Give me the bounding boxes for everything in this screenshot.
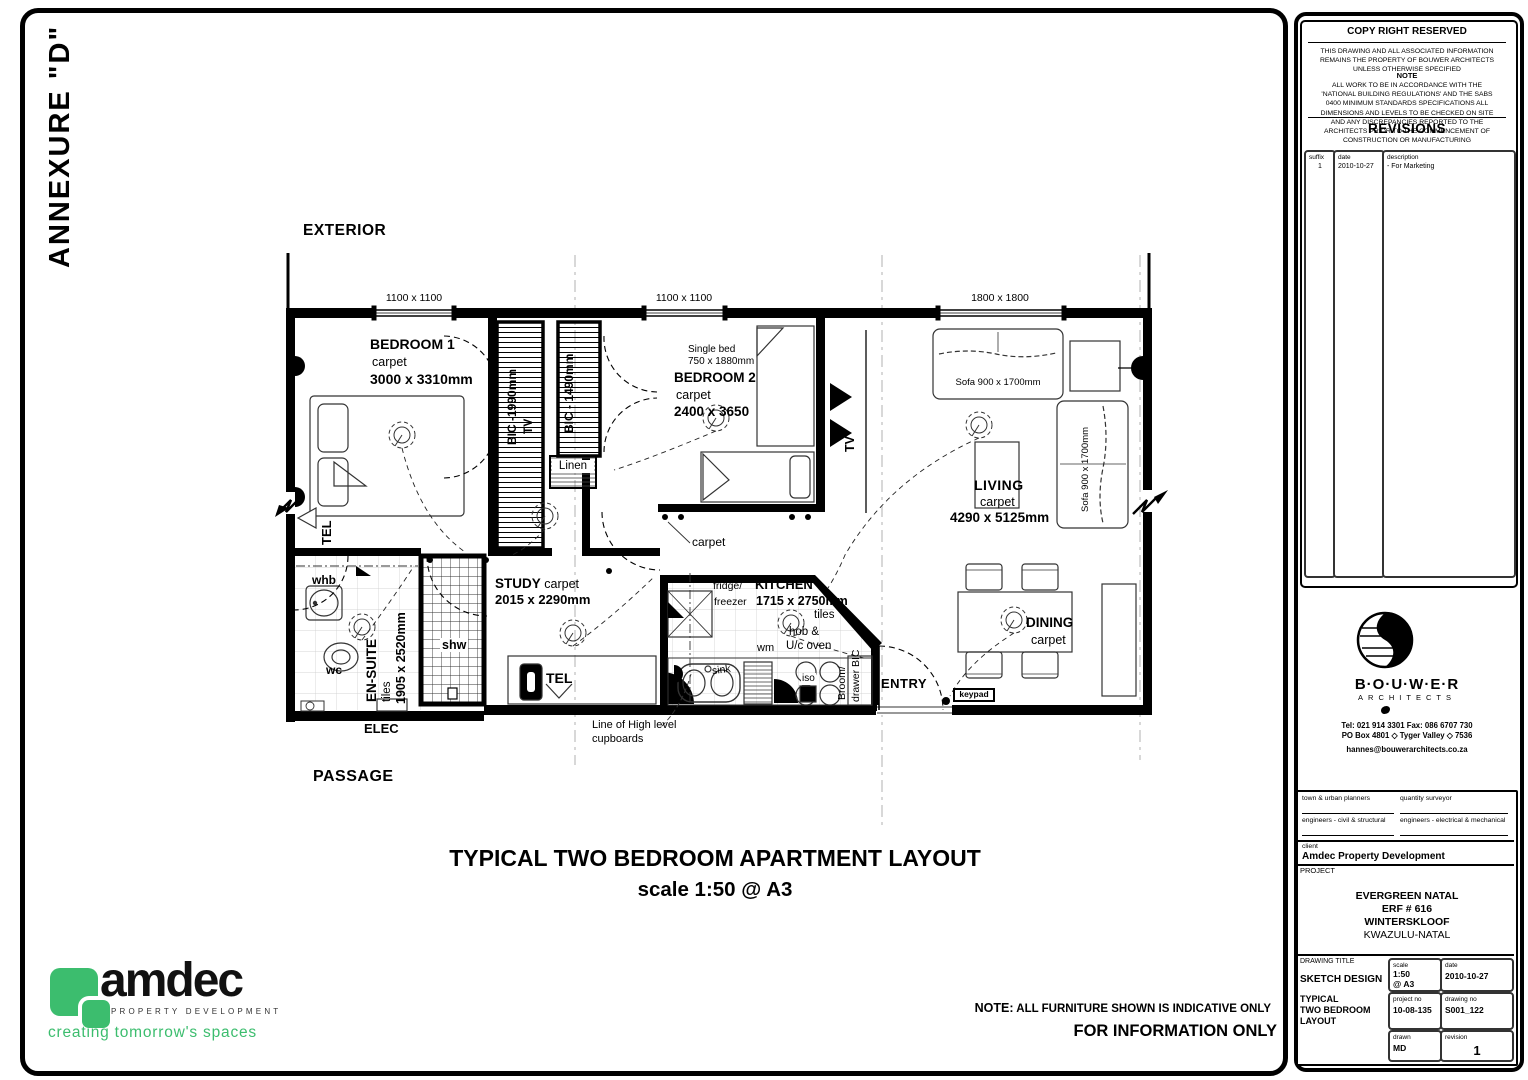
exterior-label: EXTERIOR (303, 222, 386, 240)
revisions-suffix-col: suffix 1 (1304, 150, 1336, 578)
scale-value2: @ A3 (1393, 979, 1437, 989)
bedroom2-dims: 2400 x 3650 (674, 404, 749, 420)
cupboard-note2: cupboards (592, 733, 643, 746)
architect-po: PO Box 4801 ◇ Tyger Valley ◇ 7536 (1300, 732, 1514, 741)
sofa1-label: Sofa 900 x 1700mm (933, 378, 1063, 389)
keypad-label: keypad (953, 688, 995, 702)
drawn-value: MD (1393, 1043, 1437, 1053)
divider (1302, 835, 1394, 836)
living-finish: carpet (980, 495, 1015, 509)
drawing-no-box: drawing no S001_122 (1440, 992, 1514, 1030)
bedroom2-name: BEDROOM 2 (674, 370, 756, 386)
sheet-border (20, 8, 1288, 1076)
project-no-value: 10-08-135 (1393, 1005, 1437, 1015)
ensuite-dims: 1905 x 2520mm (394, 612, 408, 704)
scale-value1: 1:50 (1393, 969, 1437, 979)
client-name: Amdec Property Development (1302, 851, 1445, 863)
fridge-label2: freezer (714, 596, 747, 608)
bedroom1-tel-label: TEL (320, 520, 335, 545)
drawing-sheet: ANNEXURE "D" EXTERIOR PASSAGE 1100 x 110… (0, 0, 1528, 1080)
drawing-scale-title: scale 1:50 @ A3 (340, 878, 1090, 902)
client-label: client (1302, 843, 1318, 851)
cupboard-note1: Line of High level (592, 719, 676, 732)
project-label: PROJECT (1300, 867, 1335, 876)
bedroom2-finish: carpet (676, 388, 711, 402)
project-line4: KWAZULU-NATAL (1300, 929, 1514, 941)
study-tel-label: TEL (546, 670, 572, 686)
broom-label2: drawer BIC (850, 649, 862, 702)
tv-label: TV (843, 436, 857, 452)
drawing-title-1: SKETCH DESIGN (1300, 974, 1382, 986)
architect-email: hannes@bouwerarchitects.co.za (1300, 746, 1514, 755)
fridge-label1: fridge/ (713, 580, 742, 592)
window2-dim: 1100 x 1100 (634, 292, 734, 304)
amdec-wordmark: amdec (100, 953, 242, 1008)
revision-box: revision 1 (1440, 1030, 1514, 1062)
drawing-no-label: drawing no (1445, 996, 1509, 1003)
iso-label: iso (801, 673, 816, 685)
architect-type: ARCHITECTS (1300, 694, 1514, 703)
revisions-title: REVISIONS (1300, 121, 1514, 137)
wc-label: wc (326, 664, 342, 678)
divider (1308, 42, 1506, 43)
bedroom1-finish: carpet (372, 355, 407, 369)
drawing-title-label: DRAWING TITLE (1300, 958, 1354, 966)
scale-box: scale 1:50 @ A3 (1388, 958, 1442, 992)
window3-dim: 1800 x 1800 (950, 292, 1050, 304)
dining-name: DINING (1026, 615, 1073, 631)
hob-label1: hob & (789, 626, 819, 639)
bic1-label: BIC -1990mm (506, 369, 520, 445)
study-dims: 2015 x 2290mm (495, 593, 590, 608)
sink-label: sink (711, 663, 731, 678)
drawing-title-4: LAYOUT (1300, 1016, 1336, 1026)
dining-finish: carpet (1031, 633, 1066, 647)
whb-label: whb (312, 574, 336, 588)
consultant-qs: quantity surveyor (1400, 795, 1452, 803)
divider (1302, 813, 1394, 814)
amdec-slogan: creating tomorrow's spaces (48, 1024, 257, 1042)
linen-label: Linen (552, 460, 594, 473)
divider (1308, 117, 1506, 118)
project-line2: ERF # 616 (1300, 903, 1514, 915)
amdec-tagline: PROPERTY DEVELOPMENT (111, 1007, 281, 1016)
drawing-main-title: TYPICAL TWO BEDROOM APARTMENT LAYOUT (340, 845, 1090, 871)
sofa2-label: Sofa 900 x 1700mm (1081, 427, 1092, 512)
annexure-label: ANNEXURE "D" (44, 25, 77, 268)
divider (1296, 954, 1514, 956)
wm-label: wm (757, 642, 774, 655)
architect-name: B·O·U·W·E·R (1300, 676, 1514, 693)
passage-label: PASSAGE (313, 768, 394, 786)
bic1-tv-label: TV (522, 419, 536, 434)
divider (1296, 840, 1514, 842)
kitchen-name: KITCHEN (755, 578, 813, 593)
consultant-civil: engineers - civil & structural (1302, 817, 1385, 825)
bedroom1-name: BEDROOM 1 (370, 336, 455, 352)
note-text: ALL FURNITURE SHOWN IS INDICATIVE ONLY (1016, 1003, 1271, 1015)
living-name: LIVING (974, 477, 1024, 493)
elec-label: ELEC (364, 722, 399, 737)
broom-label1: Broom/ (836, 666, 848, 700)
drawing-title-2: TYPICAL (1300, 994, 1339, 1004)
note-prefix: NOTE: (975, 1001, 1014, 1015)
entry-label: ENTRY (881, 677, 927, 692)
drawn-label: drawn (1393, 1034, 1437, 1041)
divider (1400, 813, 1508, 814)
kitchen-finish: tiles (814, 609, 834, 622)
bedroom2-bed-label: Single bed (688, 344, 735, 356)
drawing-no-value: S001_122 (1445, 1005, 1509, 1015)
window1-dim: 1100 x 1100 (364, 292, 464, 304)
revision-value: 1 (1445, 1043, 1509, 1058)
drawing-title-3: TWO BEDROOM (1300, 1005, 1371, 1015)
rev-date-value: 2010-10-27 (1338, 163, 1380, 170)
date-box: date 2010-10-27 (1440, 958, 1514, 992)
project-no-box: project no 10-08-135 (1388, 992, 1442, 1030)
revisions-date-col: date 2010-10-27 (1333, 150, 1385, 578)
project-no-label: project no (1393, 996, 1437, 1003)
rev-desc-header: description (1387, 154, 1511, 161)
study-name: STUDY (495, 576, 541, 591)
study-title: STUDY carpet (495, 576, 579, 592)
divider (1400, 835, 1508, 836)
consultant-elec: engineers - electrical & mechanical (1400, 817, 1505, 825)
living-dims: 4290 x 5125mm (950, 510, 1049, 526)
project-line3: WINTERSKLOOF (1300, 916, 1514, 928)
hob-label2: U/c oven (786, 640, 831, 653)
consultant-planners: town & urban planners (1302, 795, 1370, 803)
drawn-box: drawn MD (1388, 1030, 1442, 1062)
suffix-header: suffix (1309, 154, 1331, 161)
project-line1: EVERGREEN NATAL (1300, 890, 1514, 902)
suffix-value: 1 (1309, 163, 1331, 170)
info-only-note: FOR INFORMATION ONLY (830, 1022, 1277, 1041)
copyright-title: COPY RIGHT RESERVED (1300, 26, 1514, 38)
rev-date-header: date (1338, 154, 1380, 161)
date-label: date (1445, 962, 1509, 969)
kitchen-dims: 1715 x 2750mm (756, 594, 848, 608)
hall-carpet-label: carpet (692, 536, 725, 550)
furniture-note: NOTE: ALL FURNITURE SHOWN IS INDICATIVE … (830, 1001, 1271, 1016)
bouwer-logo-icon (1350, 608, 1420, 674)
bic2-label: BIC - 1490mm (563, 354, 577, 433)
ensuite-finish: tiles (381, 682, 394, 702)
ensuite-name: EN-SUITE (364, 639, 380, 702)
study-finish: carpet (544, 577, 579, 591)
revision-label: revision (1445, 1034, 1509, 1041)
rev-desc-value: - For Marketing (1387, 163, 1511, 170)
architect-tel: Tel: 021 914 3301 Fax: 086 6707 730 (1300, 722, 1514, 731)
date-value: 2010-10-27 (1445, 971, 1509, 981)
note-title: NOTE (1300, 72, 1514, 81)
bedroom1-dims: 3000 x 3310mm (370, 371, 473, 387)
bedroom2-bed-dims: 750 x 1880mm (688, 356, 754, 368)
shower-label: shw (440, 638, 468, 652)
revisions-desc-col: description - For Marketing (1382, 150, 1516, 578)
scale-label: scale (1393, 962, 1437, 969)
